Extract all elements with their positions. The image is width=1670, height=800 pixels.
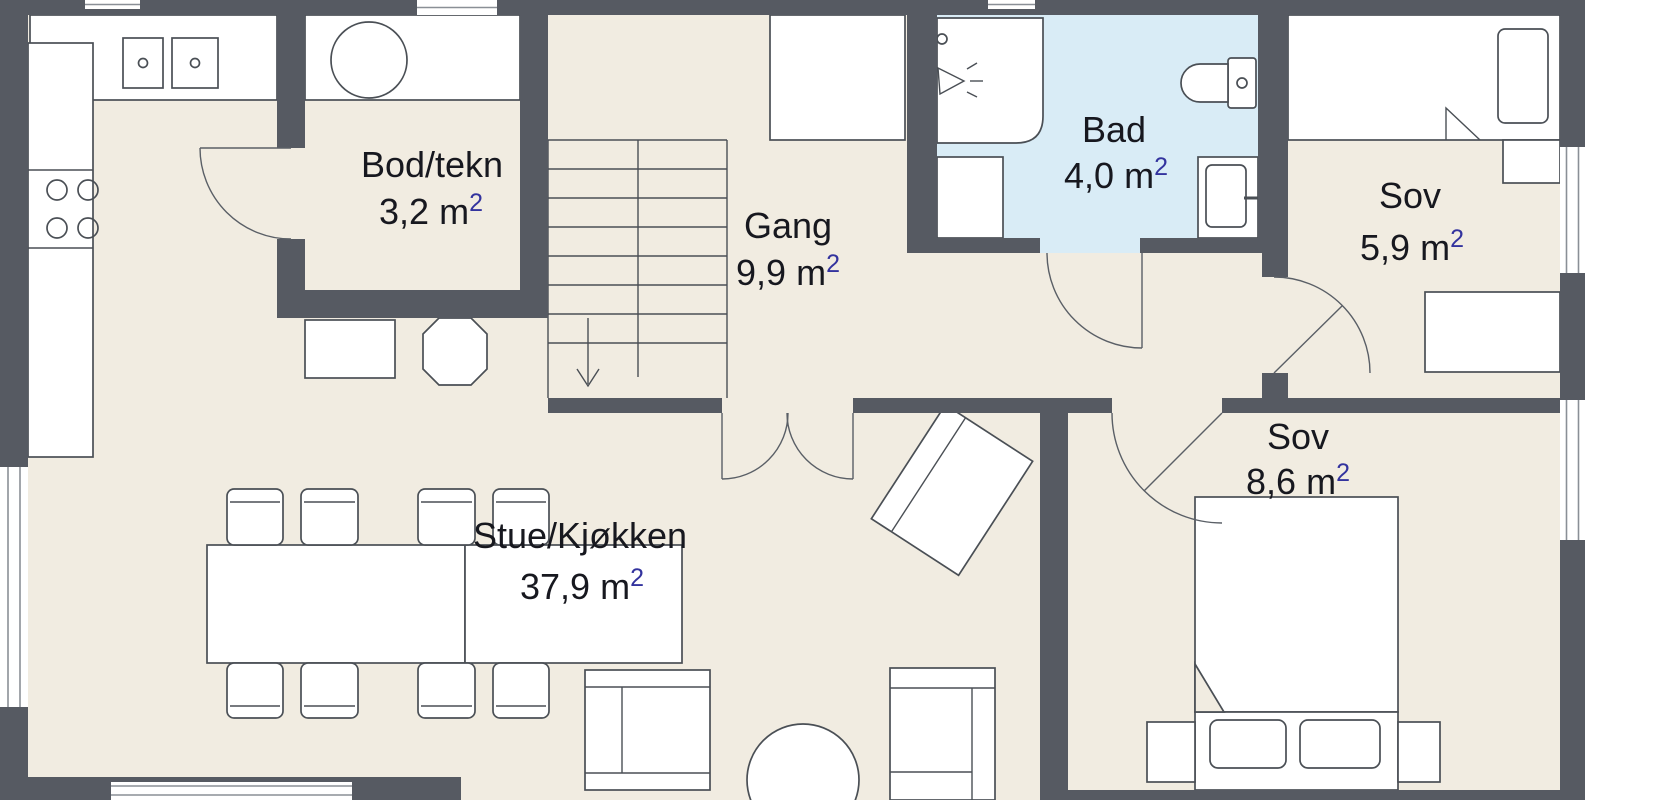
tall-cabinet <box>305 320 395 378</box>
bathroom-sink <box>937 157 1003 238</box>
armchair <box>585 670 710 790</box>
pillow <box>1210 720 1286 768</box>
room-area: 4,0 m2 <box>1064 153 1168 196</box>
water-tank <box>331 22 407 98</box>
washing-machine <box>1198 157 1258 238</box>
kitchen-sink-basin <box>123 38 163 88</box>
dining-chair <box>493 663 549 718</box>
room-area: 9,9 m2 <box>736 250 840 293</box>
room-name: Bod/tekn <box>361 144 503 185</box>
dining-chair <box>227 663 283 718</box>
shower <box>937 18 1043 143</box>
window <box>1560 147 1585 273</box>
dining-chair <box>301 663 358 718</box>
room-name: Bad <box>1082 109 1146 150</box>
double-bed <box>1195 497 1398 790</box>
room-area: 37,9 m2 <box>520 564 644 607</box>
room-area: 8,6 m2 <box>1246 459 1350 502</box>
kitchen-counter-left <box>28 43 98 457</box>
room-name: Sov <box>1379 175 1441 216</box>
window <box>111 782 352 800</box>
room-area: 3,2 m2 <box>379 189 483 232</box>
dining-chair <box>418 489 475 545</box>
single-bed <box>1288 15 1560 140</box>
room-area: 5,9 m2 <box>1360 225 1464 268</box>
dining-chair <box>227 489 283 545</box>
hall-closet <box>770 15 905 140</box>
nightstand <box>1503 140 1560 183</box>
dining-chair <box>301 489 358 545</box>
room-name: Gang <box>744 205 832 246</box>
pillow <box>1498 29 1548 123</box>
kitchen-sink-basin <box>172 38 218 88</box>
window <box>1560 400 1585 540</box>
nightstand <box>1147 722 1195 782</box>
dining-chair <box>418 663 475 718</box>
sofa <box>890 668 995 800</box>
pillow <box>1300 720 1380 768</box>
desk <box>1425 292 1560 372</box>
window <box>417 0 497 15</box>
window <box>988 0 1035 9</box>
floor-plan: Bod/tekn 3,2 m2 Gang 9,9 m2 Bad 4,0 m2 S… <box>0 0 1670 800</box>
toilet <box>1181 58 1256 108</box>
window <box>85 0 140 9</box>
nightstand <box>1398 722 1440 782</box>
window <box>0 467 28 707</box>
room-name: Stue/Kjøkken <box>473 515 687 556</box>
room-name: Sov <box>1267 416 1329 457</box>
bod-cabinet-strip <box>305 15 520 100</box>
